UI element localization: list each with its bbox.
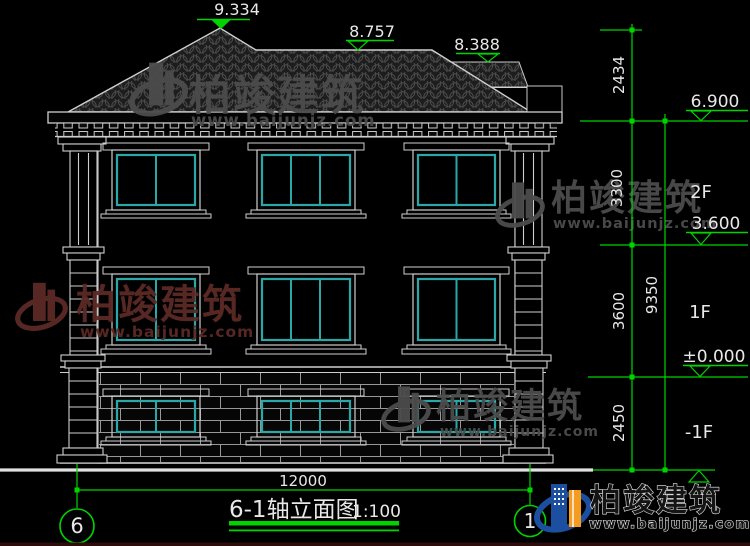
brand-logo-color: 柏竣建筑 www.baijunjz.com (532, 483, 750, 536)
level-roof-ridge: 8.757 (346, 22, 395, 50)
title-underline-thick (229, 521, 399, 526)
drawing-title: 6-1轴立面图 (229, 497, 359, 523)
roof-end-block (527, 86, 562, 112)
level-value: ±0.000 (683, 347, 746, 367)
axis-bubble-left: 6 (60, 509, 94, 543)
cad-canvas: 柏竣建筑 www.baijunjz.com 柏竣建筑 www.baijunjz.… (0, 0, 750, 546)
watermark-brand: 柏竣建筑 (436, 386, 584, 427)
level-roof-peak: 9.334 (197, 0, 260, 29)
level-value: 3.600 (692, 214, 741, 234)
logo-site-text: www.baijunjz.com (589, 516, 750, 532)
level-roof-side: 8.388 (454, 35, 500, 62)
watermark-left: 柏竣建筑 www.baijunjz.com (14, 282, 254, 341)
elevation-drawing: 柏竣建筑 www.baijunjz.com 柏竣建筑 www.baijunjz.… (0, 0, 750, 546)
level-value: 8.757 (349, 22, 395, 41)
logo-brand-text: 柏竣建筑 (590, 483, 722, 519)
bottom-strip (0, 543, 750, 546)
brand-logo-icon (14, 283, 69, 334)
floor-label-2f: 2F (690, 182, 712, 203)
title-block: 6-1轴立面图 1:100 (229, 497, 401, 531)
floor-label-1f: 1F (689, 302, 711, 323)
watermark-site: www.baijunjz.com (191, 111, 376, 130)
level-basement-marker (689, 471, 709, 483)
level-f2-top: 6.900 (686, 92, 748, 121)
dim-value: 3600 (610, 292, 628, 330)
dim-width-value: 12000 (279, 472, 327, 490)
floor-label-b1: -1F (685, 422, 713, 443)
dim-value: 2450 (610, 404, 628, 442)
title-underline-thin (229, 530, 399, 532)
drawing-scale: 1:100 (352, 502, 401, 522)
axis-number: 6 (70, 514, 83, 538)
dim-value: 2434 (610, 56, 628, 94)
level-value: 9.334 (214, 0, 260, 19)
level-value: 6.900 (691, 92, 740, 112)
watermark-site: www.baijunjz.com (80, 323, 254, 341)
window (402, 267, 511, 354)
level-f2: 3.600 (686, 214, 748, 245)
level-ground: ±0.000 (683, 347, 748, 377)
watermark-brand: 柏竣建筑 (76, 282, 244, 328)
level-value: 8.388 (454, 35, 500, 54)
dim-value: 3300 (608, 169, 626, 207)
watermark-site: www.baijunjz.com (440, 424, 599, 440)
watermark-brand: 柏竣建筑 (551, 178, 703, 219)
logo-building-blue (551, 484, 567, 528)
dim-total: 9350 (643, 276, 661, 314)
logo-building-orange (569, 490, 581, 527)
